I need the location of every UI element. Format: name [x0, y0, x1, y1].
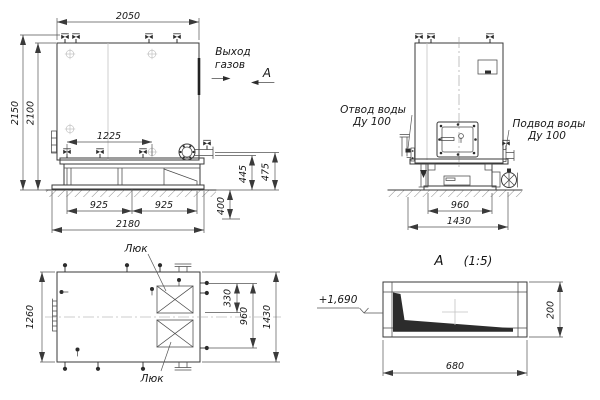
hatch-label-bottom: Люк — [139, 373, 164, 385]
dim-960-top: 960 — [239, 307, 250, 325]
dim-680: 680 — [446, 361, 464, 372]
drain-pipe — [195, 147, 213, 159]
water-inlet-label-line1: Подвод воды — [513, 118, 586, 130]
bolt-icon — [96, 362, 100, 371]
dim-445: 445 — [238, 165, 249, 183]
dim-1430-top: 1430 — [262, 305, 273, 329]
detail-title: А — [433, 253, 443, 269]
valve-icon — [203, 140, 211, 149]
valve-icon — [96, 149, 104, 158]
water-inlet-label-line2: Ду 100 — [527, 130, 566, 142]
bolt-icon — [125, 263, 129, 272]
center-mark-icon — [65, 124, 75, 134]
dim-1225: 1225 — [97, 131, 121, 142]
valve-icon — [139, 149, 147, 158]
valve-icon — [486, 34, 494, 43]
base-frame — [428, 164, 492, 186]
valve-icon — [173, 34, 181, 43]
dim-2180: 2180 — [116, 219, 140, 230]
dim-2150: 2150 — [10, 101, 21, 125]
bolt-icon — [141, 362, 145, 371]
dim-925-right: 925 — [155, 200, 173, 211]
detail-view: А (1:5) +1,690 680 200 — [317, 253, 563, 376]
bolt-icon — [200, 346, 209, 350]
hatch-label-top: Люк — [123, 243, 148, 255]
bolt-icon — [200, 291, 209, 295]
dim-200: 200 — [546, 301, 557, 319]
bolt-icon — [200, 281, 209, 285]
section-view-arrow-icon — [251, 80, 259, 85]
detail-scale: (1:5) — [464, 254, 493, 268]
dim-960: 960 — [451, 200, 469, 211]
ground-hatch — [46, 191, 216, 198]
water-outlet-label-line2: Ду 100 — [352, 116, 391, 128]
center-cross — [442, 299, 468, 325]
water-outlet-label-line1: Отвод воды — [340, 104, 406, 116]
valve-icon — [61, 34, 69, 43]
dim-1260: 1260 — [25, 305, 36, 329]
gas-outlet-label-line1: Выход — [215, 46, 250, 58]
dim-400: 400 — [216, 197, 227, 215]
drawing-canvas: 2050 2150 2100 1225 925 925 2180 445 475… — [0, 0, 600, 400]
valve-icon — [145, 34, 153, 43]
ground-hatch — [388, 191, 522, 198]
elevation-mark: +1,690 — [319, 294, 358, 306]
dim-2100: 2100 — [26, 101, 37, 125]
gas-outlet-label-line2: газов — [215, 59, 245, 71]
bolt-icon — [63, 362, 67, 371]
valve-icon — [72, 34, 80, 43]
foundation-plate — [424, 186, 496, 190]
technical-drawing-boiler: 2050 2150 2100 1225 925 925 2180 445 475… — [0, 0, 600, 400]
wall-fitting — [52, 131, 57, 153]
dim-1430: 1430 — [447, 216, 471, 227]
gas-flow-arrow-icon — [223, 76, 231, 81]
dim-2050: 2050 — [116, 11, 140, 22]
pipe-flange — [175, 362, 191, 370]
foundation-plate — [52, 185, 204, 189]
bolt-icon — [158, 263, 162, 272]
dim-925-left: 925 — [90, 200, 108, 211]
pipe-flange — [175, 264, 191, 272]
door-handle — [441, 138, 454, 141]
center-mark-icon — [147, 49, 157, 59]
valve-icon — [415, 34, 423, 43]
dim-475: 475 — [261, 163, 272, 181]
hinge-strip — [53, 299, 57, 331]
elevation-leader — [317, 308, 383, 313]
side-view: Отвод воды Ду 100 Подвод воды Ду 100 960… — [340, 34, 585, 230]
center-mark-icon — [65, 49, 75, 59]
valve-icon — [427, 34, 435, 43]
section-mark-label: А — [262, 66, 271, 80]
dim-330: 330 — [223, 289, 234, 307]
top-view: Люк Люк 1260 330 960 1430 — [25, 243, 281, 385]
bolt-icon — [63, 263, 67, 272]
front-view: 2050 2150 2100 1225 925 925 2180 445 475… — [10, 11, 279, 233]
